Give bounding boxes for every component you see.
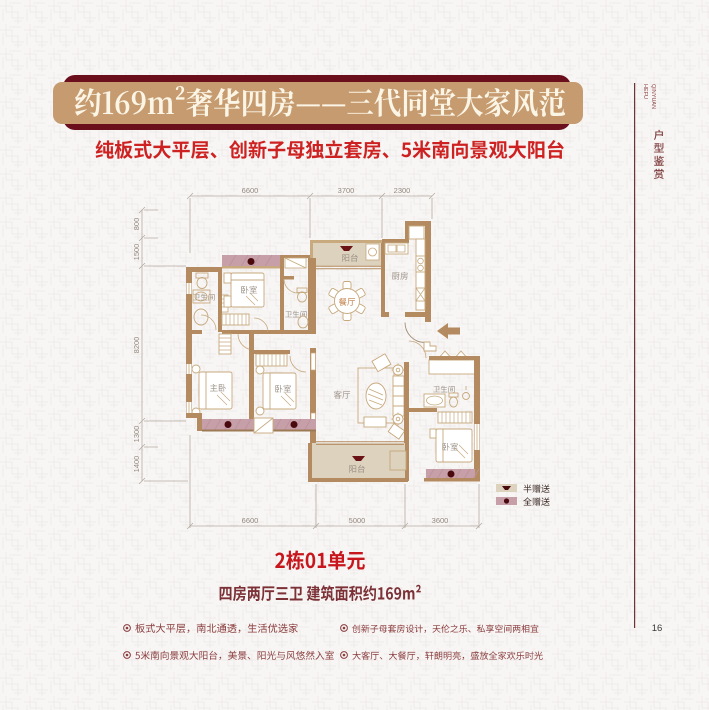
svg-text:QINYUAN: QINYUAN [650, 84, 656, 109]
svg-text:8200: 8200 [132, 337, 141, 354]
svg-text:3600: 3600 [432, 516, 449, 525]
svg-text:1400: 1400 [132, 456, 141, 473]
svg-text:3700: 3700 [338, 186, 355, 195]
svg-text:2300: 2300 [394, 186, 411, 195]
svg-text:5000: 5000 [349, 516, 366, 525]
svg-text:800: 800 [132, 218, 141, 231]
svg-text:6600: 6600 [242, 516, 259, 525]
svg-text:HEFU: HEFU [642, 84, 648, 99]
svg-text:1300: 1300 [132, 426, 141, 443]
svg-text:6600: 6600 [242, 186, 259, 195]
svg-text:1500: 1500 [132, 244, 141, 261]
svg-text:16: 16 [652, 623, 663, 634]
